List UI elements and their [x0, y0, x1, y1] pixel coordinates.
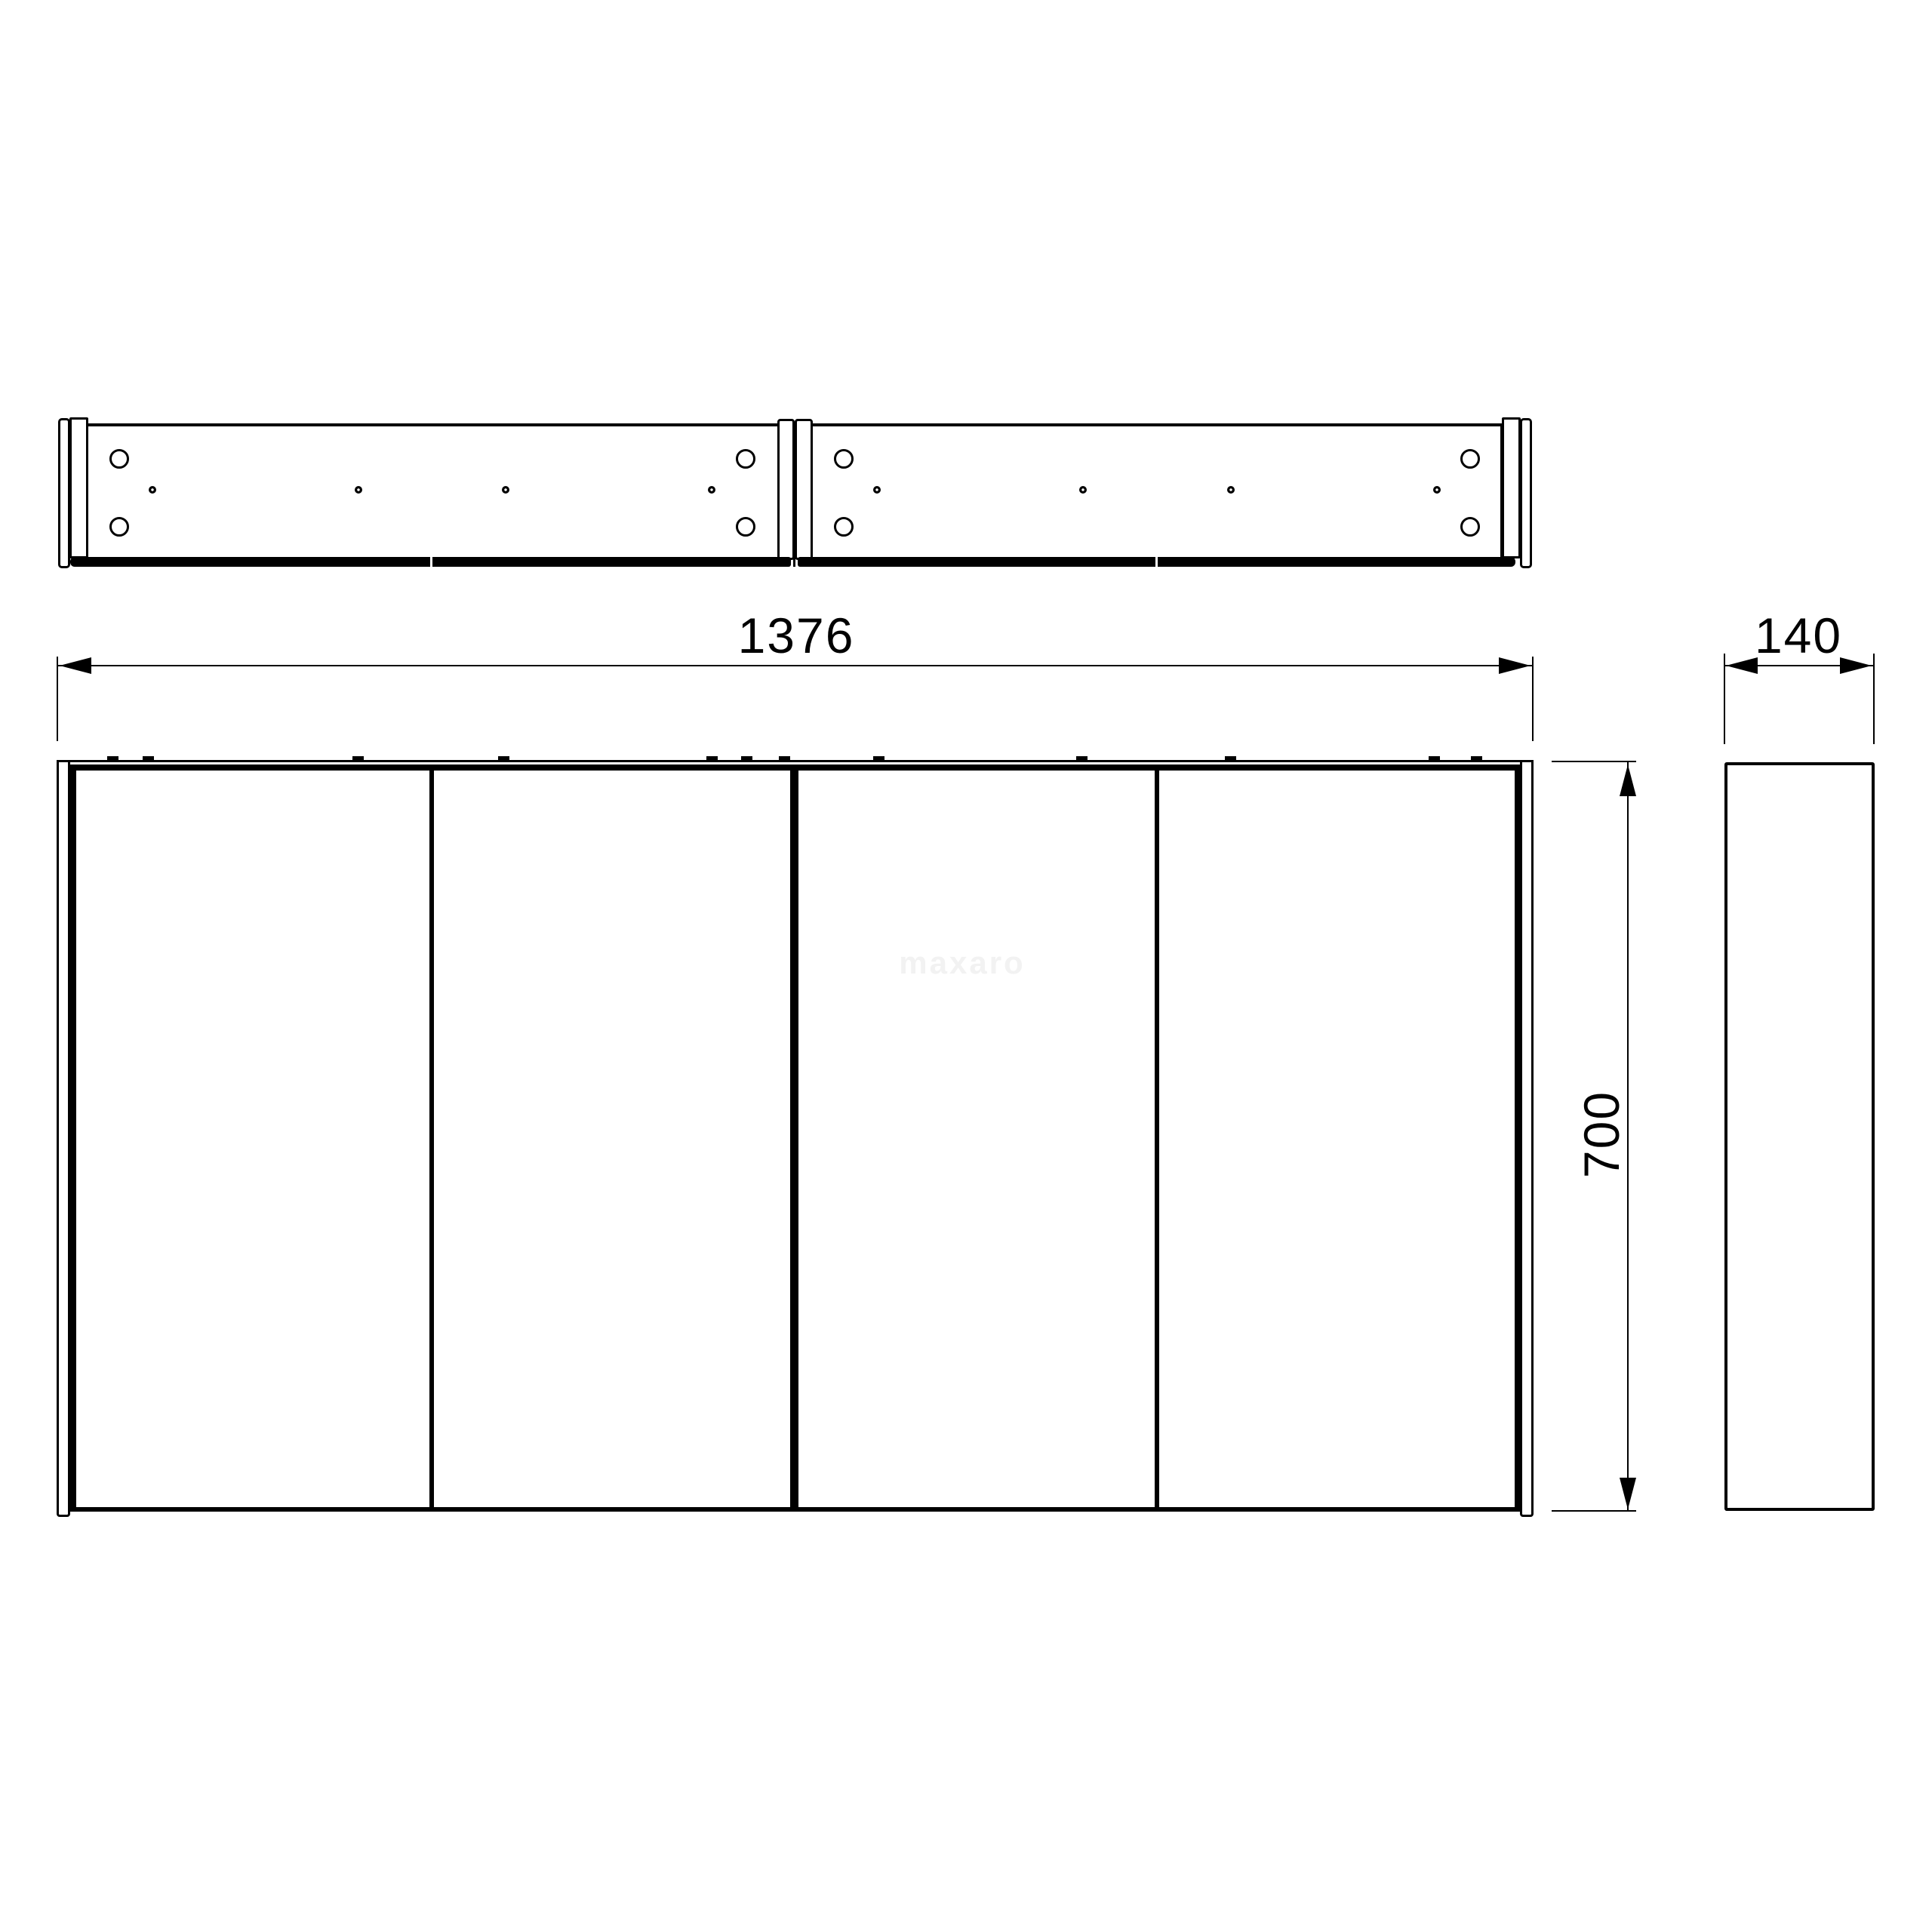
mounting-hole [834, 517, 854, 537]
screw-hole [502, 486, 509, 494]
door-divider [429, 771, 434, 1507]
width-arrow-left-icon [60, 657, 91, 674]
mounting-hole [736, 449, 755, 469]
hinge-mark [873, 756, 884, 761]
height-extension-line-top [1552, 761, 1636, 762]
mounting-hole [736, 517, 755, 537]
mounting-hole [1460, 517, 1480, 537]
height-dimension-label: 700 [1573, 1051, 1623, 1217]
screw-hole [1433, 486, 1441, 494]
top-view-junction-tick [793, 557, 795, 567]
top-view-junction-strip-left [777, 419, 795, 560]
hinge-mark [1076, 756, 1088, 761]
hinge-mark [107, 756, 118, 761]
side-view-outline [1724, 762, 1875, 1511]
hinge-mark [1429, 756, 1440, 761]
width-dimension-label: 1376 [645, 607, 947, 664]
depth-extension-line-left [1724, 654, 1725, 744]
door-divider [790, 771, 798, 1507]
screw-hole [1079, 486, 1087, 494]
mounting-hole [109, 449, 129, 469]
hinge-mark [706, 756, 718, 761]
hinge-mark [143, 756, 154, 761]
top-view-right-outer-cap [1520, 418, 1532, 568]
hinge-mark [498, 756, 509, 761]
top-view-body-edge-right [813, 423, 1502, 426]
top-view-left-outer-cap [58, 418, 70, 568]
width-dimension-line [57, 665, 1533, 666]
mounting-hole [834, 449, 854, 469]
front-right-side-panel [1520, 760, 1534, 1517]
hinge-mark [741, 756, 752, 761]
top-view-junction-strip-right [795, 419, 813, 560]
hinge-mark [1471, 756, 1482, 761]
mirror-edge-seam [430, 557, 432, 567]
front-carcass-top-line [57, 760, 1534, 762]
front-left-side-panel [57, 760, 70, 1517]
height-arrow-up-icon [1620, 764, 1636, 796]
depth-dimension-label: 140 [1685, 607, 1912, 664]
technical-drawing-canvas: 1376 140 700 maxaro [0, 0, 1932, 1932]
screw-hole [149, 486, 156, 494]
screw-hole [1227, 486, 1235, 494]
mirror-edge-seam [1155, 557, 1158, 567]
hinge-mark [352, 756, 364, 761]
width-extension-line-right [1532, 657, 1534, 741]
top-view-right-inner-cap [1502, 417, 1521, 558]
width-arrow-right-icon [1499, 657, 1531, 674]
hinge-mark [1225, 756, 1236, 761]
screw-hole [708, 486, 715, 494]
top-view-body-left-edge [86, 423, 88, 558]
door-divider [1155, 771, 1159, 1507]
height-arrow-down-icon [1620, 1478, 1636, 1509]
mounting-hole [109, 517, 129, 537]
mounting-hole [1460, 449, 1480, 469]
width-extension-line-left [57, 657, 58, 741]
height-extension-line-bottom [1552, 1510, 1636, 1512]
depth-extension-line-right [1873, 654, 1875, 744]
watermark-text: maxaro [849, 945, 1075, 981]
hinge-mark [779, 756, 790, 761]
screw-hole [873, 486, 881, 494]
screw-hole [355, 486, 362, 494]
top-view-body-edge-left [88, 423, 777, 426]
